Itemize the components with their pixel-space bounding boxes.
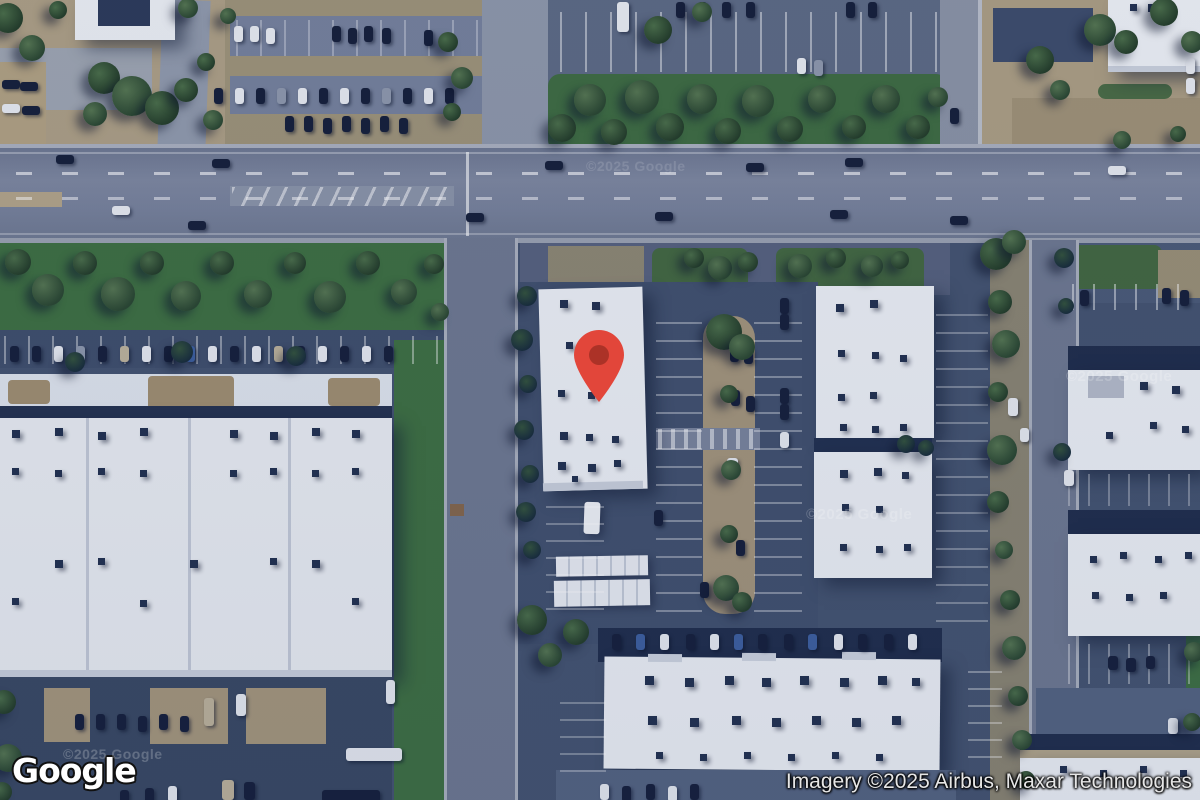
parking-lines: [560, 688, 606, 772]
rooftop-unit: [870, 300, 878, 308]
tree: [511, 329, 533, 351]
car: [235, 88, 244, 104]
sidewalk: [444, 238, 447, 800]
rooftop-unit: [836, 304, 844, 312]
tree: [872, 85, 900, 113]
grass: [1066, 245, 1162, 289]
tree: [140, 251, 164, 275]
car: [214, 88, 223, 104]
rooftop-unit: [656, 752, 663, 759]
tree: [171, 341, 193, 363]
tree: [656, 113, 684, 141]
rooftop-unit: [588, 464, 596, 472]
car: [1080, 290, 1089, 306]
car: [75, 714, 84, 730]
car: [690, 784, 699, 800]
car: [361, 88, 370, 104]
car: [212, 159, 230, 168]
road: [447, 238, 515, 800]
car: [382, 28, 391, 44]
rooftop-unit: [270, 468, 277, 475]
car: [230, 346, 239, 362]
tree: [19, 35, 45, 61]
car: [274, 346, 283, 362]
rooftop-unit: [870, 392, 877, 399]
rooftop-unit: [12, 468, 19, 475]
rooftop-unit: [872, 426, 879, 433]
rooftop-unit: [852, 718, 861, 727]
car: [322, 790, 380, 800]
rooftop-unit: [800, 676, 809, 685]
rooftop-unit: [840, 678, 849, 687]
car: [318, 346, 327, 362]
tree: [1084, 14, 1116, 46]
shadow: [1068, 346, 1200, 370]
tree: [1114, 30, 1138, 54]
tree: [891, 251, 909, 269]
tree: [842, 115, 866, 139]
car: [2, 80, 20, 89]
rooftop-unit: [230, 430, 238, 438]
car: [646, 784, 655, 800]
tree: [928, 87, 948, 107]
car: [700, 582, 709, 598]
rooftop-unit: [874, 468, 882, 476]
parking-lines: [1068, 474, 1200, 506]
tree: [992, 330, 1020, 358]
car: [780, 314, 789, 330]
lane-line: [0, 152, 1200, 154]
location-pin-icon[interactable]: [573, 329, 625, 403]
rooftop-unit: [55, 560, 63, 568]
tree: [220, 8, 236, 24]
car: [1064, 470, 1074, 486]
car: [32, 346, 41, 362]
rooftop-unit: [352, 598, 359, 605]
car: [746, 2, 755, 18]
car: [1126, 658, 1136, 672]
rooftop-unit: [690, 718, 699, 727]
car: [382, 88, 391, 104]
tree: [438, 32, 458, 52]
tree: [692, 2, 712, 22]
rooftop-unit: [788, 754, 795, 761]
car: [424, 88, 433, 104]
tree: [443, 103, 461, 121]
parking-lines: [546, 498, 604, 610]
rooftop-unit: [645, 676, 654, 685]
rooftop-unit: [842, 504, 849, 511]
rooftop-unit: [352, 430, 360, 438]
rooftop-unit: [12, 598, 19, 605]
car: [445, 88, 454, 104]
car: [364, 26, 373, 42]
car: [323, 118, 332, 134]
building: [0, 418, 392, 676]
utility-box: [450, 504, 464, 516]
tree: [574, 84, 606, 116]
tree: [720, 385, 738, 403]
tree: [987, 491, 1009, 513]
imagery-attribution: Imagery ©2025 Airbus, Maxar Technologies: [786, 770, 1192, 794]
parking-lines: [936, 300, 988, 622]
tree: [988, 290, 1012, 314]
rooftop-unit: [98, 468, 105, 475]
car: [319, 88, 328, 104]
tree: [1002, 230, 1026, 254]
rooftop-unit: [902, 472, 909, 479]
rooftop-unit: [744, 752, 751, 759]
rooftop-unit: [566, 342, 573, 349]
parking-lines: [754, 322, 802, 612]
car: [845, 158, 863, 167]
rooftop-unit: [878, 676, 887, 685]
car: [622, 786, 631, 800]
rooftop-unit: [558, 462, 566, 470]
dirt: [1012, 98, 1200, 150]
car: [120, 790, 129, 800]
car: [250, 26, 259, 42]
car: [120, 346, 129, 362]
tree: [424, 254, 444, 274]
tree: [244, 280, 272, 308]
tree: [523, 541, 541, 559]
tree: [32, 274, 64, 306]
rooftop-unit: [1182, 426, 1189, 433]
roof-seam: [288, 418, 291, 676]
car: [112, 206, 130, 215]
tree: [1026, 46, 1054, 74]
parking-lines: [968, 658, 1002, 758]
car: [654, 510, 663, 526]
car: [20, 82, 38, 91]
car: [1168, 718, 1178, 734]
tree: [788, 254, 812, 278]
car: [846, 2, 855, 18]
rooftop-unit: [838, 394, 845, 401]
tree: [1002, 636, 1026, 660]
tree: [906, 115, 930, 139]
rooftop-unit: [55, 470, 62, 477]
building: [1068, 534, 1200, 636]
parking-lines: [656, 322, 702, 612]
car: [1146, 656, 1155, 669]
rooftop-unit: [872, 352, 879, 359]
rooftop-unit: [12, 430, 20, 438]
tree: [738, 252, 758, 272]
tree: [1000, 590, 1020, 610]
tree: [451, 67, 473, 89]
rooftop-unit: [312, 470, 319, 477]
hedge: [1098, 84, 1172, 99]
tree: [171, 281, 201, 311]
car: [342, 116, 351, 132]
tree: [684, 248, 704, 268]
car: [780, 298, 789, 314]
car: [298, 88, 307, 104]
rooftop-unit: [1090, 556, 1097, 563]
rooftop-unit: [270, 432, 278, 440]
tree: [1050, 80, 1070, 100]
tree: [808, 85, 836, 113]
car: [304, 116, 313, 132]
tree: [356, 251, 380, 275]
tree: [5, 249, 31, 275]
rooftop-unit: [762, 678, 771, 687]
car: [655, 212, 673, 221]
car: [234, 26, 243, 42]
car: [340, 88, 349, 104]
tree: [777, 116, 803, 142]
tree: [721, 460, 741, 480]
tree: [732, 592, 752, 612]
car: [285, 116, 294, 132]
tree: [174, 78, 198, 102]
tree: [897, 435, 915, 453]
building: [604, 657, 941, 772]
tree: [514, 420, 534, 440]
roof-notch: [842, 652, 876, 660]
parking-lines: [232, 187, 452, 206]
car: [780, 432, 789, 448]
tree: [517, 605, 547, 635]
rooftop-unit: [312, 560, 320, 568]
rooftop-unit: [838, 350, 845, 357]
roof-seam: [86, 418, 89, 676]
car: [142, 346, 151, 362]
rooftop-unit: [876, 506, 883, 513]
car: [830, 210, 848, 219]
car: [424, 30, 433, 46]
tree: [729, 334, 755, 360]
car: [145, 788, 154, 800]
car: [159, 714, 168, 730]
tree: [1184, 642, 1200, 662]
car: [117, 714, 126, 730]
tree: [1170, 126, 1186, 142]
car: [403, 88, 412, 104]
car: [746, 396, 755, 412]
road: [0, 148, 1200, 240]
tree: [1012, 730, 1032, 750]
tree: [715, 118, 741, 144]
tree: [644, 16, 672, 44]
rooftop-unit: [832, 752, 839, 759]
car: [1108, 656, 1118, 670]
car: [204, 698, 214, 726]
rooftop-unit: [352, 468, 359, 475]
rooftop-unit: [1150, 422, 1157, 429]
map-canvas[interactable]: Google Imagery ©2025 Airbus, Maxar Techn…: [0, 0, 1200, 800]
tree: [516, 502, 536, 522]
rooftop-unit: [904, 544, 911, 551]
car: [676, 2, 685, 18]
tree: [284, 252, 306, 274]
car: [2, 104, 20, 113]
tree: [391, 279, 417, 305]
car: [736, 540, 745, 556]
parking-lines: [658, 429, 758, 449]
rooftop-unit: [230, 470, 237, 477]
rooftop-unit: [560, 432, 568, 440]
car: [138, 716, 147, 732]
car: [1186, 78, 1195, 94]
rooftop-unit: [612, 436, 619, 443]
roof-seam: [188, 418, 191, 676]
rooftop-unit: [560, 300, 568, 308]
grass: [394, 340, 450, 800]
tree: [625, 80, 659, 114]
rooftop-unit: [876, 754, 883, 761]
car: [668, 786, 677, 800]
car: [362, 346, 371, 362]
car: [950, 216, 968, 225]
rooftop-unit: [1120, 552, 1127, 559]
car: [808, 634, 817, 650]
rooftop-unit: [558, 390, 565, 397]
car: [908, 634, 917, 650]
tree: [720, 525, 738, 543]
roof-notch: [742, 653, 776, 661]
rooftop-unit: [592, 302, 600, 310]
car: [710, 634, 719, 650]
tree: [203, 110, 223, 130]
tree: [431, 303, 449, 321]
car: [834, 634, 843, 650]
tree: [73, 251, 97, 275]
car: [1020, 428, 1029, 442]
tree: [988, 382, 1008, 402]
google-logo[interactable]: Google: [12, 751, 136, 790]
rooftop-unit: [190, 560, 198, 568]
rooftop-unit: [98, 432, 106, 440]
car: [734, 634, 743, 650]
parking-lines: [16, 197, 1184, 200]
rooftop-unit: [1106, 432, 1113, 439]
rooftop-unit: [1185, 552, 1192, 559]
car: [950, 108, 959, 124]
tree: [1181, 31, 1200, 53]
tree: [995, 541, 1013, 559]
car: [380, 116, 389, 132]
roof-notch: [648, 654, 682, 662]
car: [1008, 398, 1018, 416]
car: [617, 2, 629, 32]
car: [180, 716, 189, 732]
tree: [861, 255, 883, 277]
building: [816, 286, 934, 438]
car: [884, 634, 893, 650]
tree: [918, 440, 934, 456]
car: [10, 346, 19, 362]
car: [722, 2, 731, 18]
car: [686, 634, 695, 650]
driveway: [482, 0, 554, 150]
car: [1180, 290, 1189, 306]
car: [236, 694, 246, 716]
car: [361, 118, 370, 134]
tree: [286, 346, 306, 366]
tree: [826, 248, 846, 268]
tree: [519, 375, 537, 393]
rooftop-unit: [892, 716, 901, 725]
tree: [563, 619, 589, 645]
car: [797, 58, 806, 74]
tree: [210, 251, 234, 275]
rooftop-unit: [1130, 4, 1137, 11]
rooftop-unit: [140, 428, 148, 436]
sidewalk: [1029, 240, 1032, 800]
tree: [708, 256, 732, 280]
rooftop-unit: [840, 544, 847, 551]
car: [266, 28, 275, 44]
car: [56, 155, 74, 164]
car: [277, 88, 286, 104]
car: [222, 780, 234, 800]
rooftop-unit: [1140, 382, 1148, 390]
tree: [197, 53, 215, 71]
car: [746, 163, 764, 172]
rooftop-unit: [55, 428, 63, 436]
car: [612, 634, 621, 650]
roof-structure: [1088, 376, 1124, 398]
rooftop-unit: [1160, 592, 1167, 599]
rooftop-unit: [725, 676, 734, 685]
tree: [687, 84, 717, 114]
tree: [65, 352, 85, 372]
tree: [314, 281, 346, 313]
rooftop-unit: [312, 428, 320, 436]
rooftop-unit: [912, 678, 920, 686]
car: [168, 786, 177, 800]
wall: [1020, 750, 1200, 758]
rooftop-unit: [700, 754, 707, 761]
courtyard: [328, 378, 380, 406]
tree: [1053, 443, 1071, 461]
car: [188, 221, 206, 230]
shadow: [0, 406, 392, 418]
rooftop-unit: [840, 424, 847, 431]
tree: [601, 119, 627, 145]
tree: [1113, 131, 1131, 149]
tree: [49, 1, 67, 19]
car: [1108, 166, 1126, 175]
car: [858, 634, 867, 650]
car: [399, 118, 408, 134]
car: [208, 346, 217, 362]
rooftop-unit: [648, 716, 657, 725]
car: [780, 404, 789, 420]
rooftop-unit: [1126, 594, 1133, 601]
building: [814, 452, 932, 578]
car: [346, 748, 402, 761]
car: [98, 346, 107, 362]
rooftop-unit: [900, 424, 907, 431]
rooftop-unit: [572, 476, 578, 482]
rooftop-unit: [1172, 386, 1180, 394]
tree: [145, 91, 179, 125]
car: [22, 106, 40, 115]
tree: [538, 643, 562, 667]
car: [1162, 288, 1171, 304]
tree: [101, 277, 135, 311]
car: [660, 634, 669, 650]
rooftop-unit: [772, 718, 781, 727]
car: [600, 784, 609, 800]
rooftop-unit: [1092, 592, 1099, 599]
tree: [517, 286, 537, 306]
car: [814, 60, 823, 76]
